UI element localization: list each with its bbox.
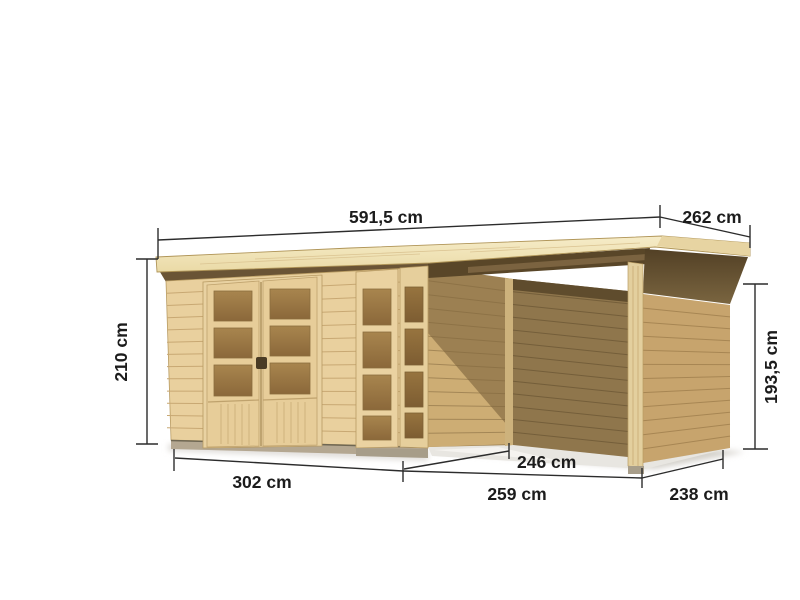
corner-window-side-panes <box>405 287 423 438</box>
inner-corner-post <box>505 278 513 446</box>
dim-height-left-label: 210 cm <box>111 322 131 381</box>
canopy-right-wall <box>643 294 730 463</box>
dim-line-canopy-front-width <box>403 471 642 478</box>
dim-canopy-inner-depth-label: 246 cm <box>517 452 576 472</box>
dim-wall-height-right-label: 193,5 cm <box>761 330 781 404</box>
door-handle <box>256 357 267 369</box>
door-panes-left <box>214 291 252 396</box>
dim-line-house-front-width <box>175 458 403 471</box>
dim-roof-width-label: 591,5 cm <box>349 207 423 227</box>
double-door <box>203 275 322 448</box>
canopy-back-wall <box>505 278 628 457</box>
shed-illustration: 591,5 cm 262 cm 210 cm 193,5 cm 302 cm 2… <box>0 0 800 600</box>
dim-house-front-width-label: 302 cm <box>232 472 291 492</box>
dim-side-depth-right-label: 238 cm <box>669 484 728 504</box>
dim-roof-depth-label: 262 cm <box>682 207 741 227</box>
product-dimension-diagram: 591,5 cm 262 cm 210 cm 193,5 cm 302 cm 2… <box>0 0 800 600</box>
corner-window-front-panes <box>363 289 391 440</box>
dim-canopy-front-width-label: 259 cm <box>487 484 546 504</box>
corner-window <box>356 266 428 458</box>
canopy-corner-post <box>628 262 644 474</box>
door-panes-right <box>270 289 310 394</box>
house-side-wall-shaded <box>428 267 513 447</box>
